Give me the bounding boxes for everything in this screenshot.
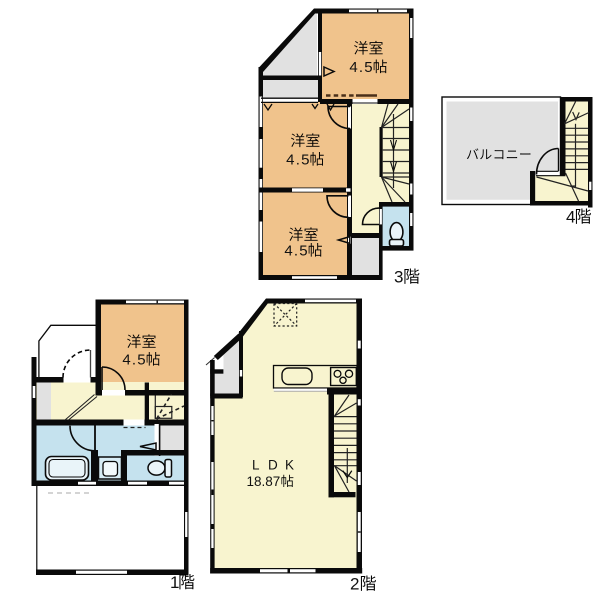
- svg-text:4.5: 4.5: [284, 243, 308, 260]
- svg-text:18.87: 18.87: [247, 474, 281, 489]
- svg-text:4.5: 4.5: [286, 152, 310, 169]
- svg-text:K: K: [285, 458, 294, 473]
- svg-text:2: 2: [350, 575, 359, 594]
- svg-text:1: 1: [170, 573, 179, 592]
- svg-text:L: L: [252, 458, 260, 473]
- svg-text:4.5: 4.5: [122, 352, 146, 369]
- svg-text:4.5: 4.5: [349, 59, 373, 76]
- svg-text:4: 4: [566, 208, 575, 227]
- svg-text:3: 3: [394, 268, 403, 287]
- svg-text:D: D: [268, 458, 278, 473]
